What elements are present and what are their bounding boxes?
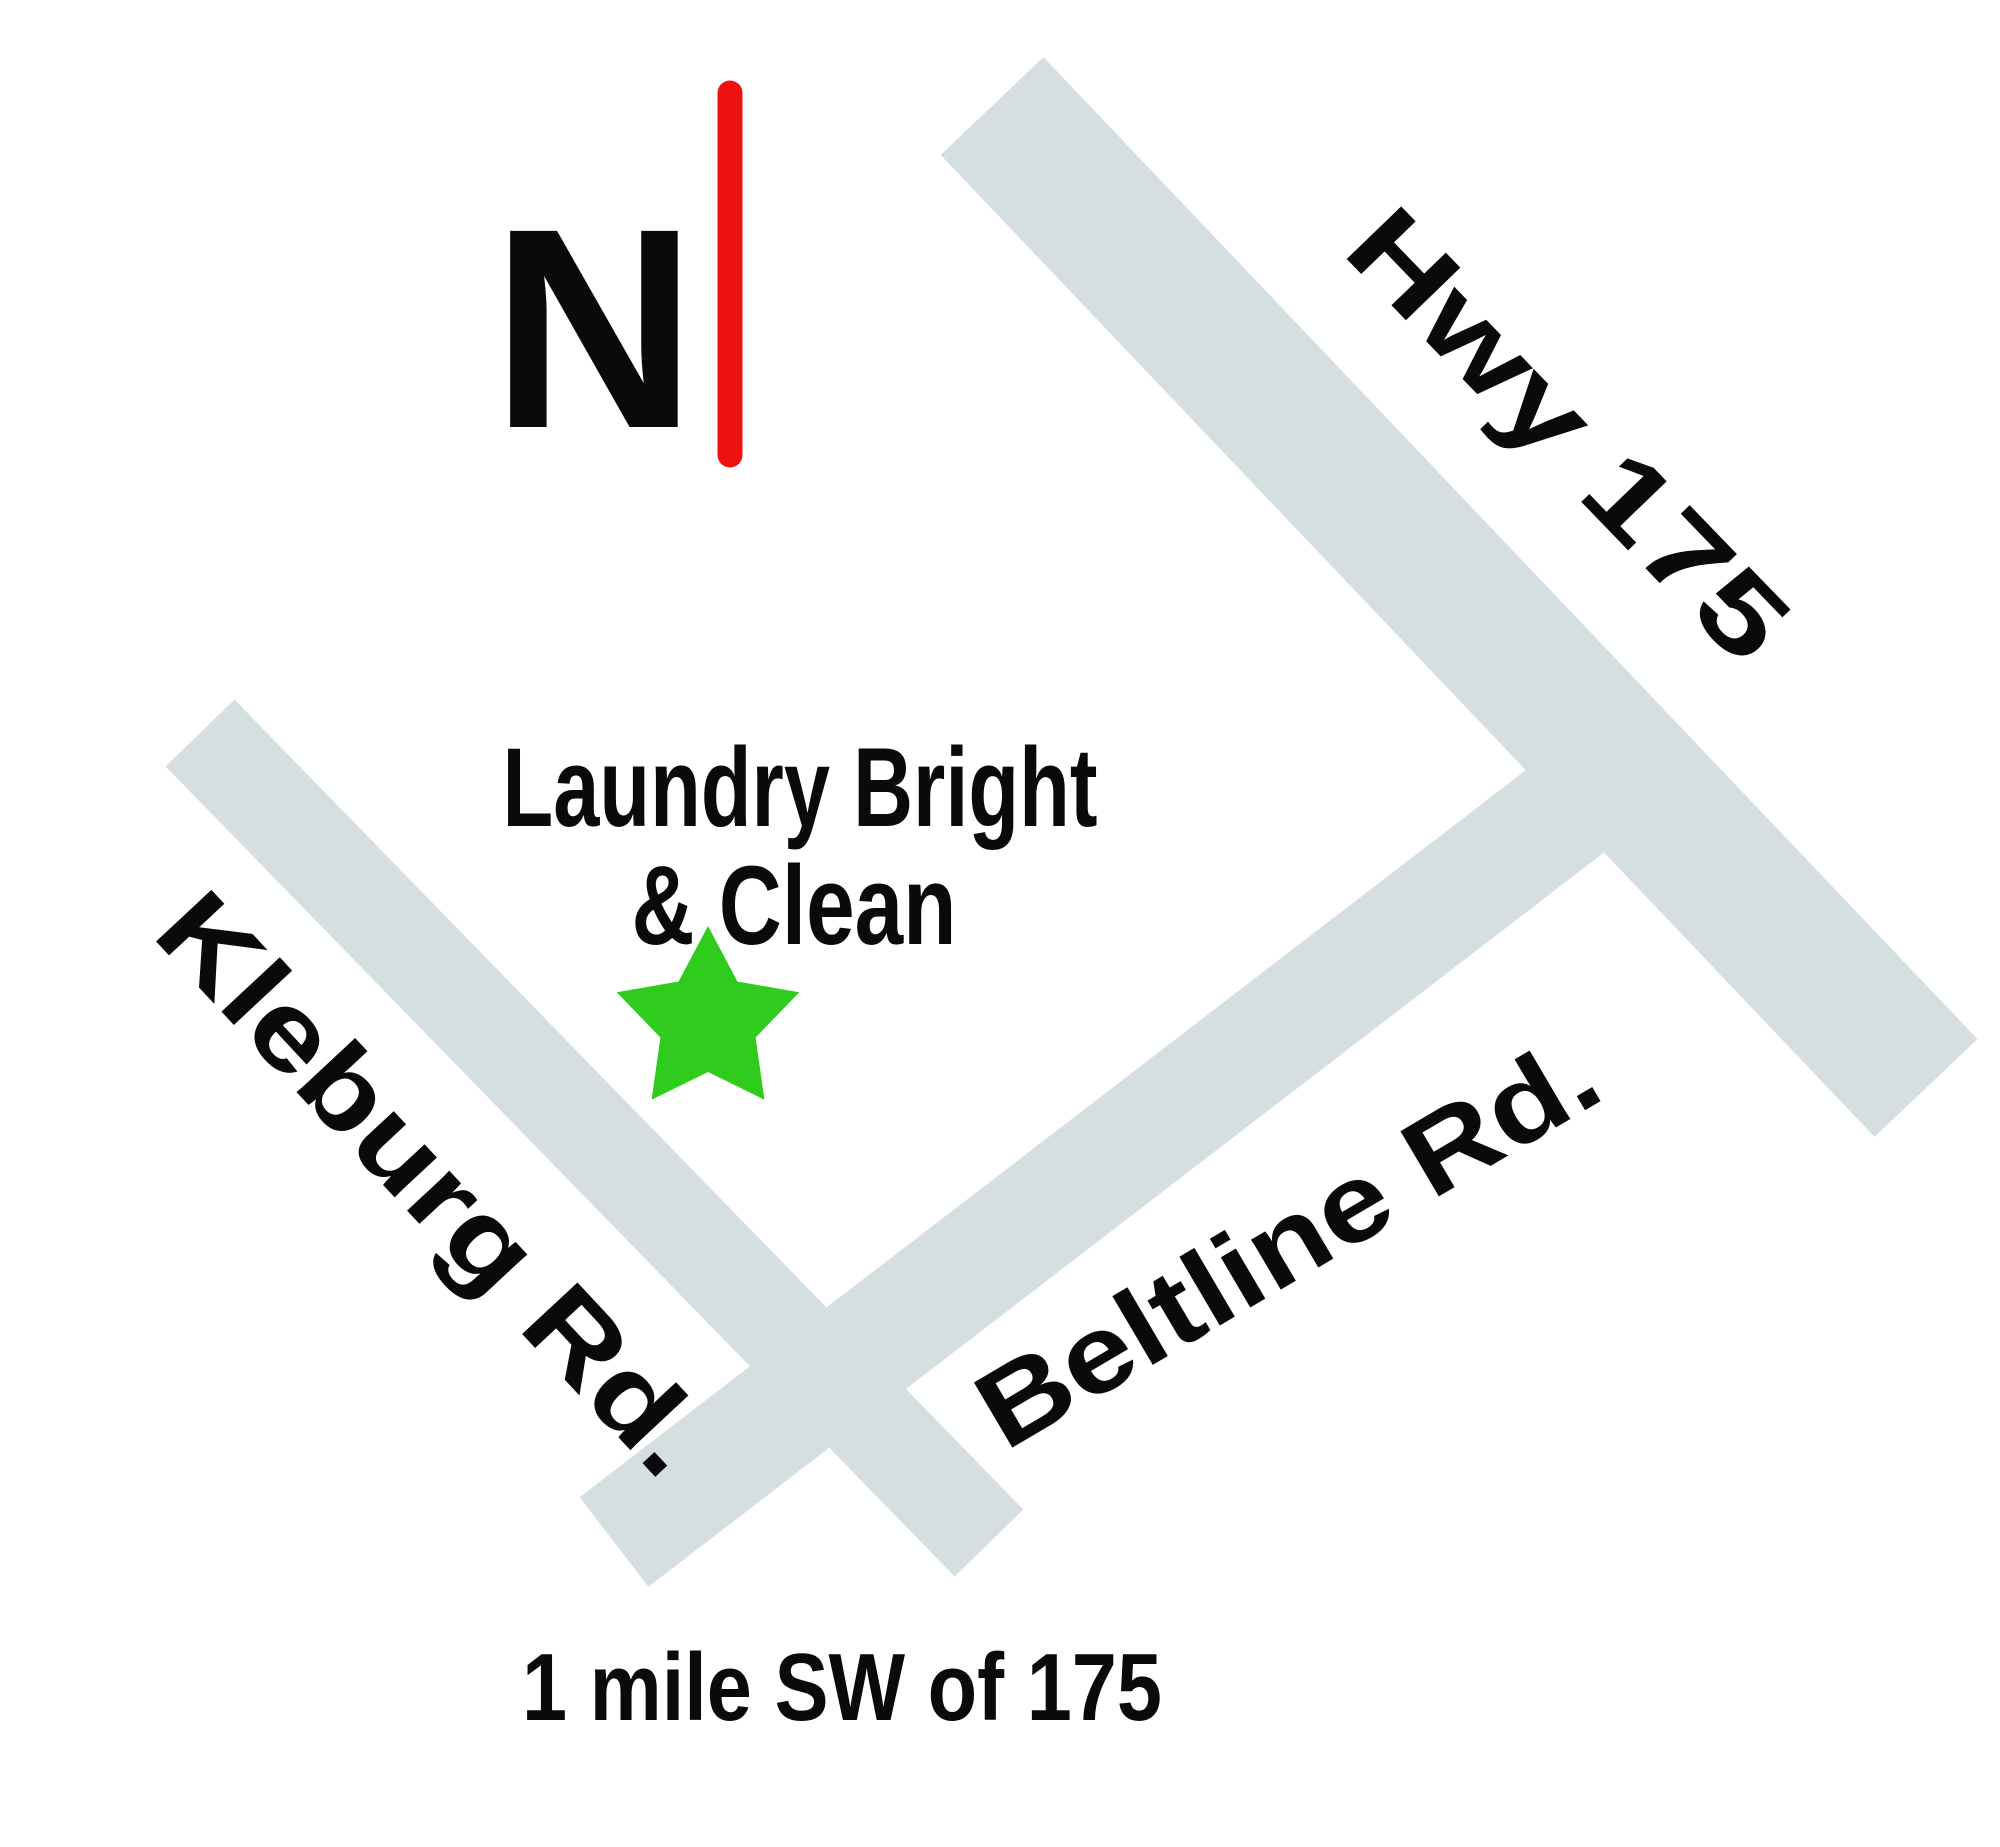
map-canvas: N Laundry Bright & Clean Hwy 175 Kleburg… [0,0,2000,1847]
footnote-distance: 1 mile SW of 175 [522,1634,1162,1741]
poi-label-line1: Laundry Bright [503,725,1098,850]
compass-n-label: N [491,170,697,488]
locator-map: N Laundry Bright & Clean Hwy 175 Kleburg… [0,0,2000,1847]
poi-label-line2: & Clean [632,843,957,968]
